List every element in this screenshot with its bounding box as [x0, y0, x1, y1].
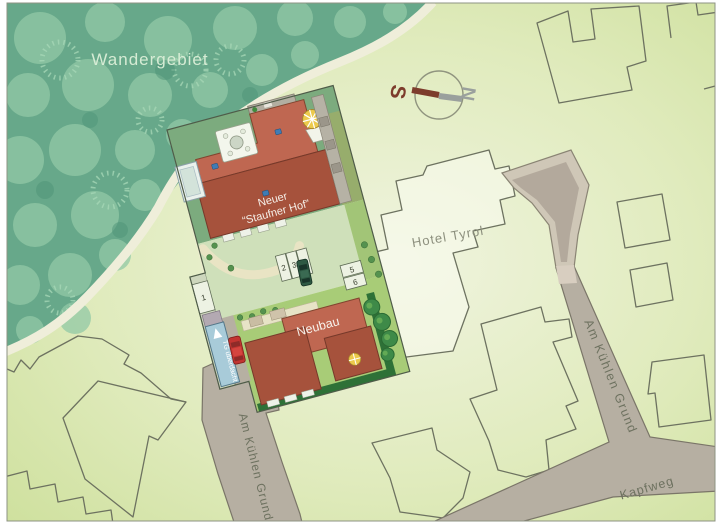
site-plan-canvas: Neuer “Staufner Hof”: [0, 0, 719, 531]
region-label: Wandergebiet: [91, 50, 208, 69]
site-plan: Neuer “Staufner Hof”: [0, 0, 719, 531]
road-top-patch: [556, 265, 577, 284]
